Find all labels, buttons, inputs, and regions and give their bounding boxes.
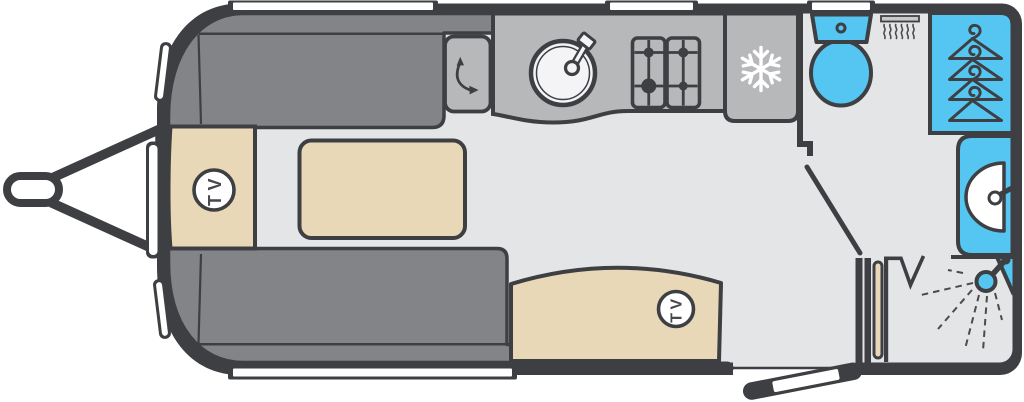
- svg-text:TV: TV: [669, 295, 686, 322]
- svg-text:TV: TV: [205, 174, 225, 206]
